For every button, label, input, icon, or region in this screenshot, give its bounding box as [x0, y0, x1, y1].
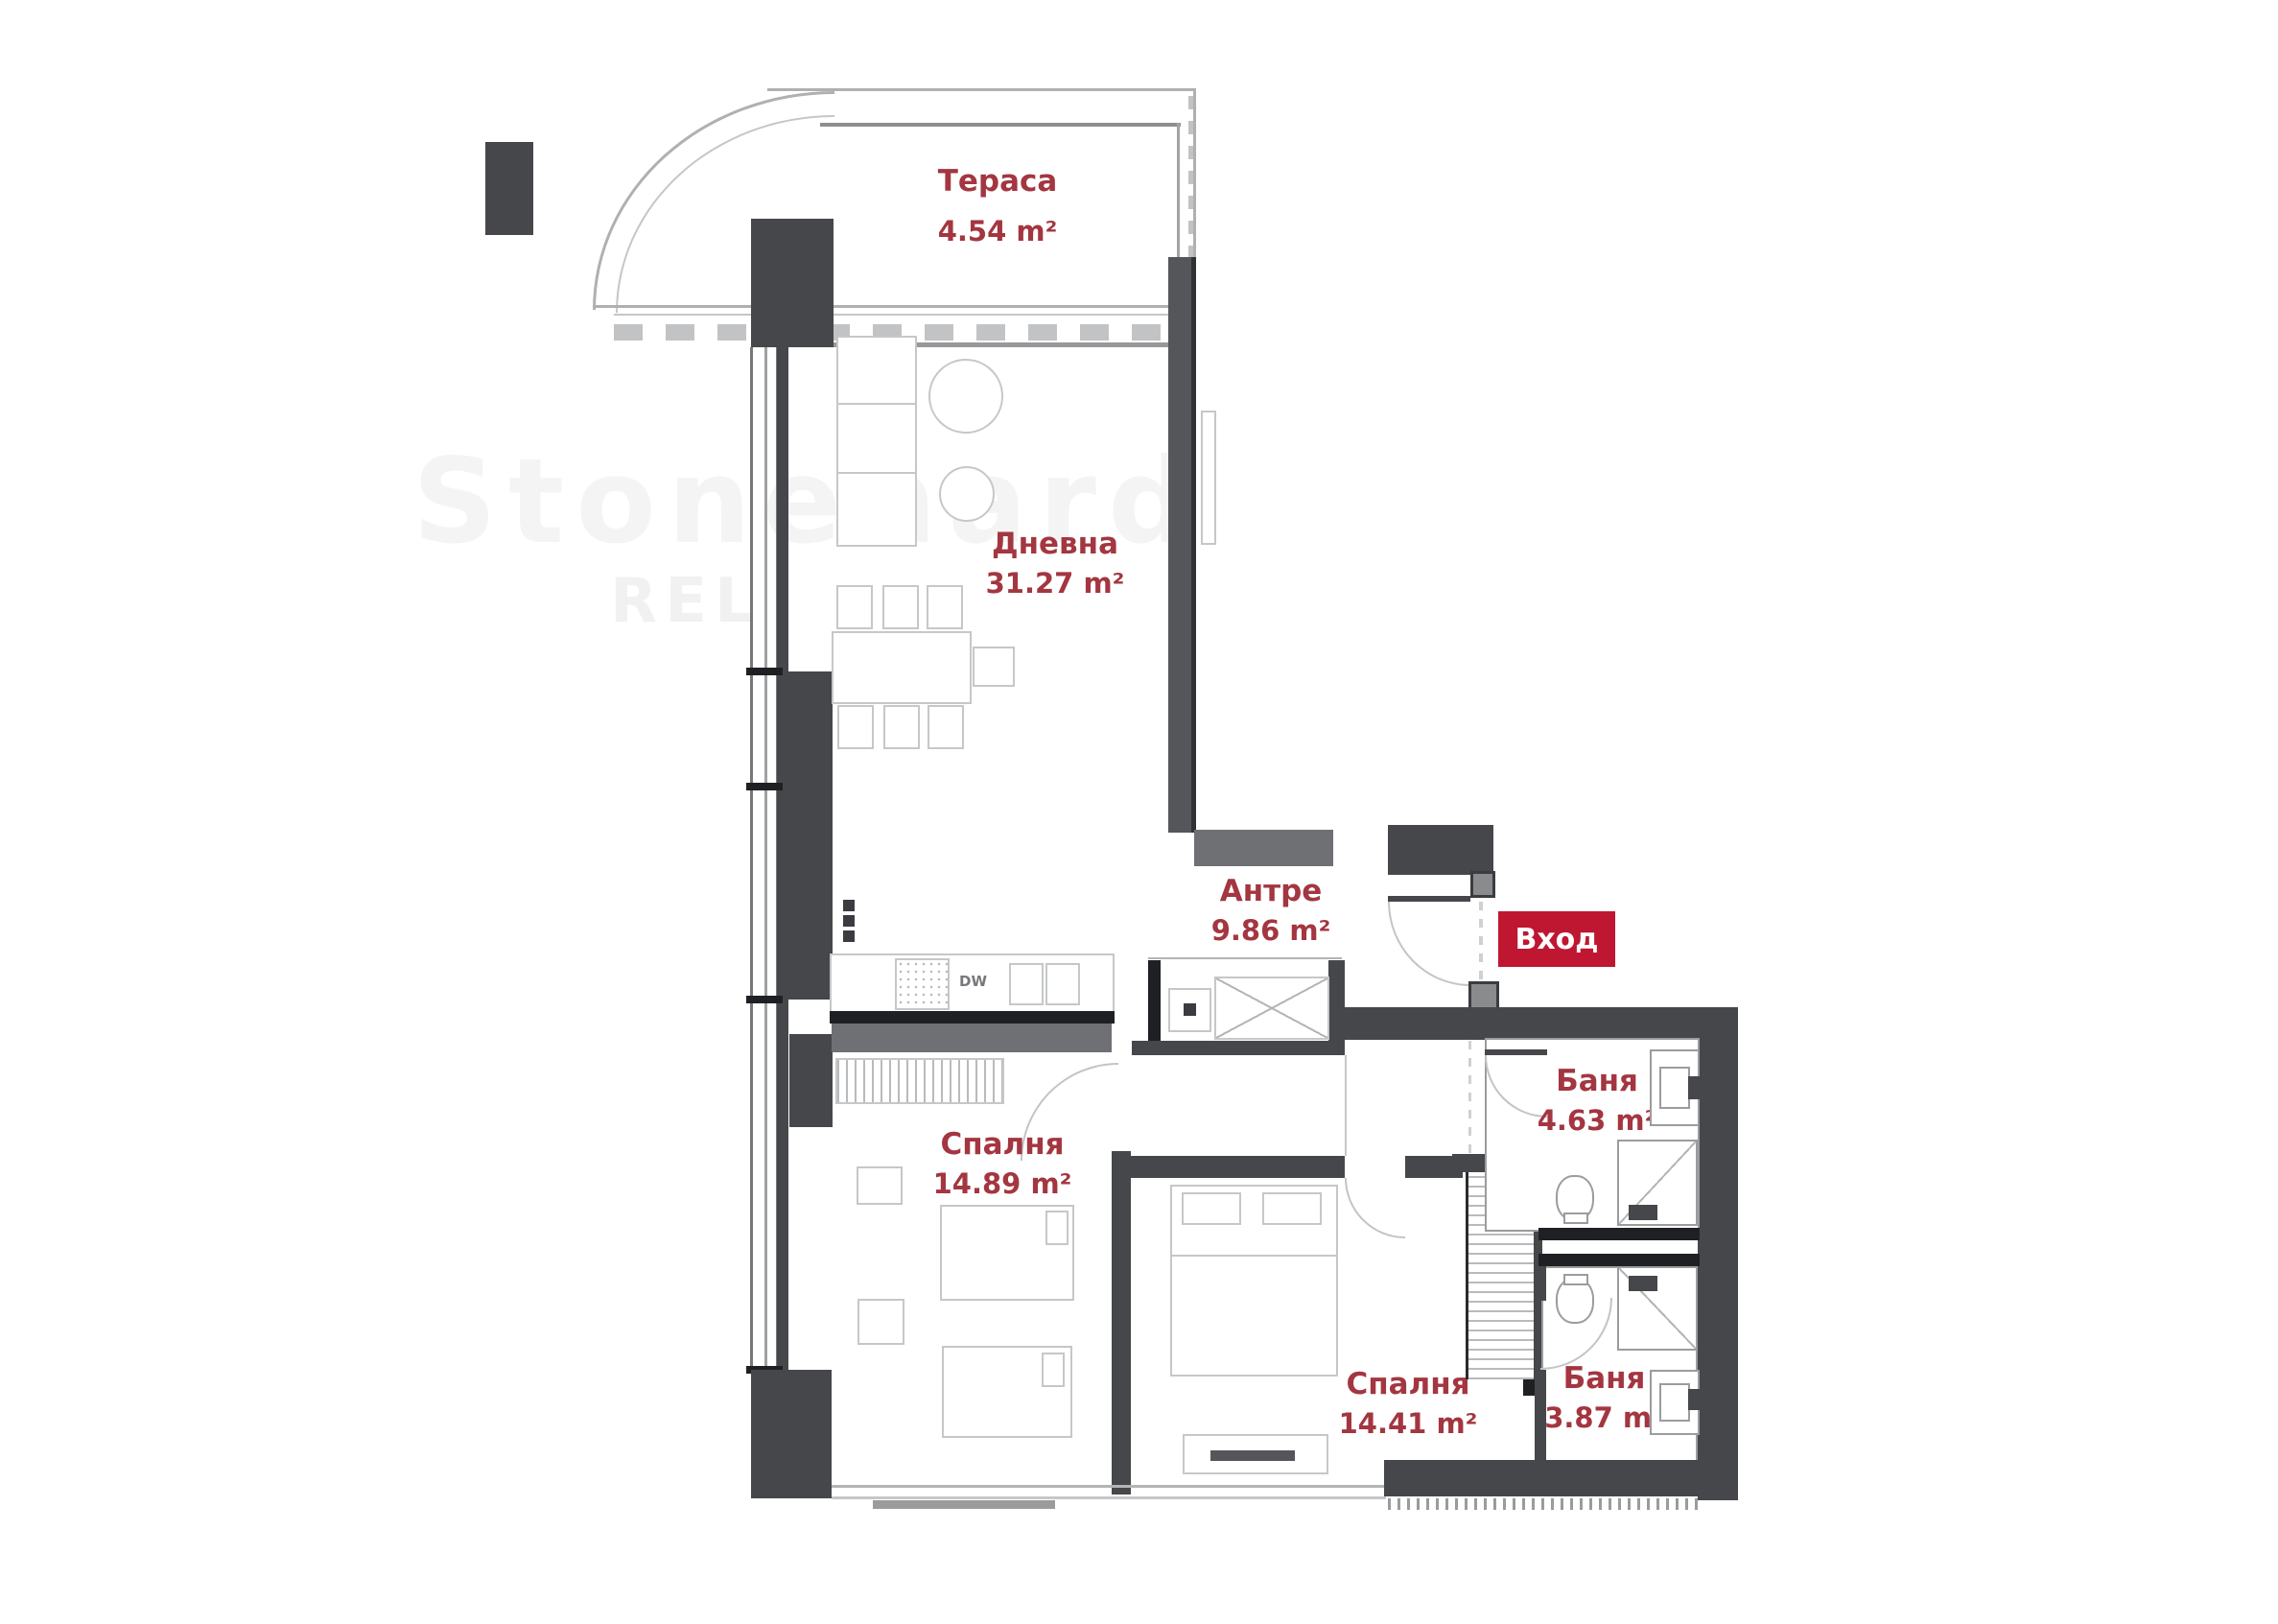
bottom-window-line-inner	[832, 1496, 1386, 1499]
dining-chair-bottom-1	[837, 705, 874, 749]
bedroom2-pillow-1	[1182, 1192, 1241, 1225]
window-mullion-1	[746, 668, 783, 675]
entrance-threshold-dashed	[1479, 902, 1483, 982]
dining-chair-top-1	[836, 585, 873, 629]
wall-bedroom1-corner-block	[789, 1034, 833, 1127]
floor-plan-canvas: Stonehard REL Тераса 4.54 m² Вход Антре …	[0, 0, 2278, 1624]
bathroom2-sink-basin	[1659, 1383, 1690, 1422]
bottom-radiator-band	[873, 1500, 1055, 1509]
bathroom2-toilet-tank	[1563, 1274, 1588, 1285]
wall-hall-top-mid	[1194, 830, 1333, 866]
kitchen-stove	[895, 958, 950, 1010]
hall-wardrobe-crossbox	[1214, 977, 1329, 1040]
bathroom2-shower-head	[1629, 1276, 1657, 1291]
tv-unit-living	[1201, 411, 1216, 545]
window-mullion-3	[746, 996, 783, 1003]
niche-top-line	[1148, 957, 1342, 959]
bathroom2-left-stub-top	[1535, 1266, 1546, 1301]
dishwasher-label: DW	[959, 973, 987, 990]
bedroom2-blanket-line	[1172, 1255, 1336, 1257]
bathroom1-shower-head	[1629, 1205, 1657, 1220]
bedroom2-pillow-2	[1262, 1192, 1322, 1225]
bedroom1-bed-1-pillow	[1045, 1211, 1069, 1245]
wall-corner-bottom-left	[751, 1370, 832, 1498]
window-mullion-2	[746, 783, 783, 790]
dining-chair-bottom-2	[883, 705, 920, 749]
room-label-hallway: Антре 9.86 m²	[1161, 875, 1381, 947]
bedroom1-nightstand-1	[857, 1166, 903, 1205]
coffee-table-round-small	[939, 466, 995, 522]
wall-bottom-right	[1384, 1460, 1701, 1496]
terrace-bottom-line-inner	[614, 314, 1182, 316]
wall-left-kitchen-slab	[787, 671, 833, 1000]
wall-bathrooms-party-1	[1538, 1228, 1700, 1240]
room-label-terrace: Тераса 4.54 m²	[878, 165, 1117, 247]
wall-pier-top-left	[485, 142, 533, 235]
wall-kitchen-bedroom1-black	[830, 1011, 1115, 1024]
bathroom1-faucet	[1688, 1076, 1700, 1099]
bedroom2-tv	[1210, 1450, 1295, 1461]
terrace-bottom-line-outer	[593, 305, 1182, 308]
sofa-cushion-line-1	[838, 403, 915, 405]
bedroom1-nightstand-2	[857, 1299, 904, 1345]
wall-bathrooms-party-2	[1538, 1254, 1700, 1266]
wall-bathroom-top	[1335, 1007, 1738, 1040]
bathroom1-toilet-tank	[1563, 1212, 1588, 1224]
wall-kitchen-bedroom1-mid	[832, 1024, 1112, 1052]
washing-machine-icon	[1184, 1003, 1196, 1016]
wall-bottom-right-hatch	[1388, 1498, 1701, 1510]
entrance-door-swing-arc	[1388, 902, 1470, 986]
bedroom1-closet	[835, 1058, 1004, 1104]
bottom-window-line-outer	[832, 1485, 1386, 1488]
sofa-cushion-line-2	[838, 472, 915, 474]
bedroom1-bed-2-pillow	[1042, 1353, 1065, 1387]
terrace-top-edge	[767, 88, 1196, 91]
bathroom2-faucet	[1688, 1389, 1700, 1410]
kitchen-sink-basin-2	[1045, 963, 1080, 1005]
niche-bottom-wall	[1132, 1041, 1345, 1055]
wall-corner-top-left	[751, 219, 834, 347]
wall-bedroom2-top	[1120, 1156, 1345, 1178]
wall-hall-top-dark	[1388, 825, 1493, 875]
dining-chair-bottom-3	[928, 705, 964, 749]
entrance-badge: Вход	[1498, 911, 1615, 967]
bedroom2-door-swing-arc	[1345, 1178, 1405, 1238]
entrance-door-jamb-upper	[1470, 871, 1495, 898]
watermark-subtext: REL	[610, 566, 762, 637]
kitchen-vent-dot-1	[843, 900, 855, 911]
bathroom1-sink-basin	[1659, 1067, 1690, 1109]
room-label-living: Дневна 31.27 m²	[935, 528, 1175, 600]
dining-table	[832, 631, 972, 704]
coffee-table-round-large	[928, 359, 1003, 434]
kitchen-vent-dot-3	[843, 930, 855, 942]
wall-left-window-glazing	[750, 347, 779, 1370]
dining-chair-top-2	[882, 585, 919, 629]
sofa	[836, 336, 917, 547]
terrace-boundary-dashed-vertical	[1188, 96, 1193, 259]
terrace-inner-top-line	[820, 123, 1181, 127]
corridor-left-line	[1345, 1055, 1347, 1156]
room-label-bedroom1: Спалня 14.89 m²	[897, 1128, 1108, 1200]
entrance-door-jamb-lower	[1468, 981, 1499, 1010]
dining-chair-end	[973, 647, 1015, 687]
kitchen-vent-dot-2	[843, 915, 855, 927]
wall-bedrooms-divider	[1112, 1151, 1131, 1495]
corridor-dashed-line	[1468, 1041, 1471, 1154]
kitchen-sink-basin-1	[1009, 963, 1044, 1005]
dining-chair-top-3	[927, 585, 963, 629]
